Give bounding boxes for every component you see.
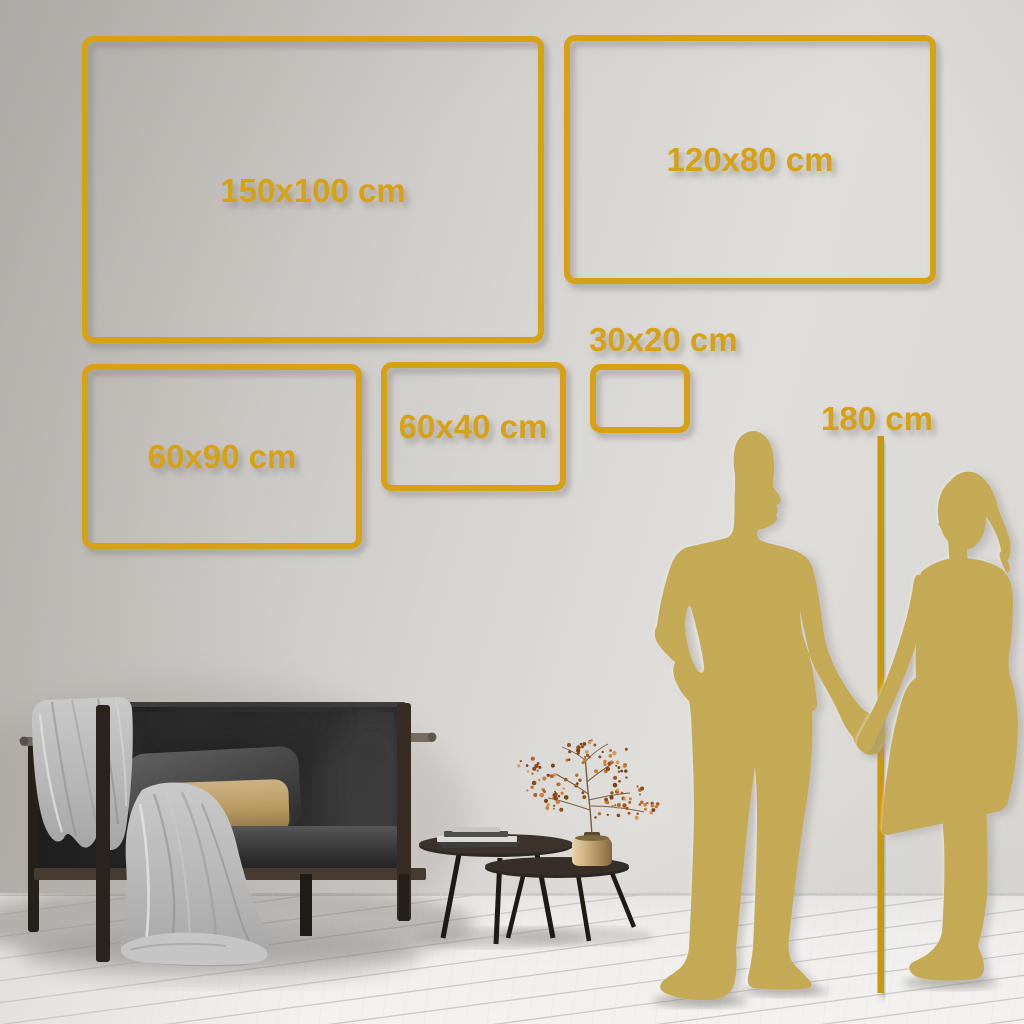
svg-text:180 cm: 180 cm bbox=[821, 400, 933, 437]
svg-text:60x90 cm: 60x90 cm bbox=[148, 438, 297, 475]
svg-text:120x80 cm: 120x80 cm bbox=[667, 141, 834, 178]
svg-text:30x20 cm: 30x20 cm bbox=[589, 321, 738, 358]
svg-text:60x40 cm: 60x40 cm bbox=[399, 408, 548, 445]
svg-text:150x100 cm: 150x100 cm bbox=[220, 172, 405, 209]
